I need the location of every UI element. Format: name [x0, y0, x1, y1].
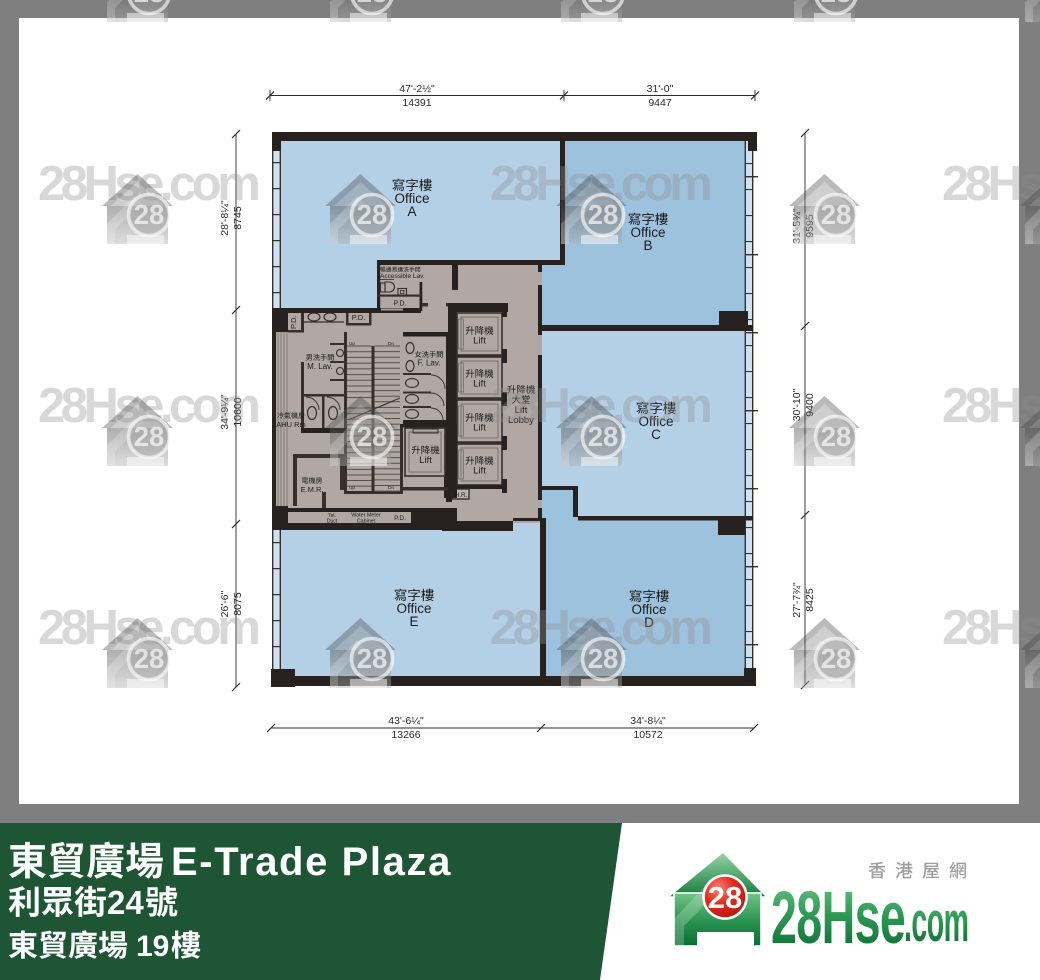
svg-text:P.D.: P.D.: [352, 313, 366, 322]
svg-text:28: 28: [588, 421, 619, 452]
svg-text:28: 28: [588, 199, 619, 230]
svg-text:47'-2½": 47'-2½": [399, 83, 435, 95]
svg-text:34'-8¼": 34'-8¼": [630, 715, 666, 727]
svg-text:8425: 8425: [804, 588, 816, 612]
svg-text:28: 28: [134, 421, 165, 452]
svg-text:Lift: Lift: [473, 466, 486, 477]
svg-text:28: 28: [588, 0, 619, 8]
svg-text:28: 28: [134, 199, 165, 230]
svg-text:Up: Up: [349, 485, 355, 490]
svg-text:28: 28: [134, 0, 165, 8]
svg-text:28: 28: [357, 643, 388, 674]
svg-text:14391: 14391: [402, 97, 431, 109]
svg-text:P.D.: P.D.: [393, 299, 406, 308]
svg-text:13266: 13266: [391, 729, 420, 741]
svg-text:Lift: Lift: [419, 455, 432, 466]
svg-text:Dn: Dn: [388, 341, 394, 346]
svg-text:24: 24: [107, 884, 144, 921]
svg-text:28: 28: [588, 643, 619, 674]
svg-text:.com: .com: [904, 889, 969, 954]
svg-text:P.D.: P.D.: [289, 315, 298, 329]
svg-text:28: 28: [821, 643, 852, 674]
svg-text:28: 28: [821, 421, 852, 452]
svg-text:Cabinet: Cabinet: [357, 519, 376, 525]
svg-text:Lift: Lift: [473, 336, 486, 347]
svg-text:28: 28: [134, 643, 165, 674]
svg-text:Up: Up: [349, 341, 355, 346]
svg-text:31'-0": 31'-0": [647, 83, 674, 95]
svg-text:28: 28: [821, 0, 852, 8]
svg-text:AHU Rm: AHU Rm: [276, 420, 306, 429]
svg-text:Duct: Duct: [327, 519, 338, 525]
svg-text:28Hse: 28Hse: [771, 877, 905, 960]
svg-text:E.M.R.: E.M.R.: [301, 485, 324, 494]
svg-text:28: 28: [357, 199, 388, 230]
svg-text:28: 28: [708, 880, 742, 915]
svg-text:9447: 9447: [648, 97, 672, 109]
svg-text:27'-7¾": 27'-7¾": [791, 582, 803, 618]
svg-text:Accessible Lav.: Accessible Lav.: [380, 273, 425, 280]
svg-text:28: 28: [821, 199, 852, 230]
svg-text:43'-6¼": 43'-6¼": [388, 715, 424, 727]
svg-text:A: A: [407, 204, 416, 219]
svg-text:P.D.: P.D.: [394, 515, 406, 522]
svg-text:28: 28: [357, 0, 388, 8]
svg-text:28: 28: [357, 421, 388, 452]
svg-text:19: 19: [136, 930, 169, 963]
svg-text:Lift: Lift: [473, 379, 486, 390]
svg-text:E: E: [409, 614, 418, 629]
svg-text:30'-10": 30'-10": [791, 388, 803, 421]
svg-text:M. Lav.: M. Lav.: [307, 362, 333, 371]
svg-text:F. Lav.: F. Lav.: [418, 359, 441, 368]
svg-text:Dn: Dn: [388, 485, 394, 490]
svg-text:B: B: [643, 238, 652, 253]
svg-text:10572: 10572: [633, 729, 662, 741]
svg-text:Lift: Lift: [473, 423, 486, 434]
svg-text:H.R.: H.R.: [455, 492, 468, 499]
svg-text:E-Trade Plaza: E-Trade Plaza: [171, 840, 452, 884]
